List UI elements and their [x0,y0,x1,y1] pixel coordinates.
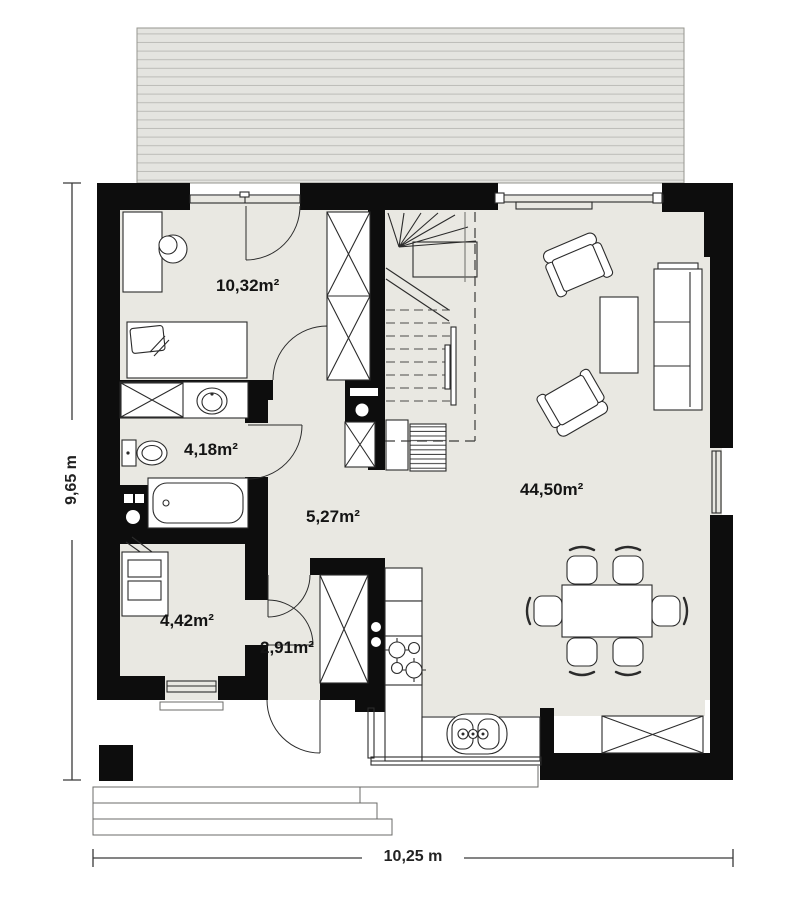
storage-box [345,422,375,467]
entrance-door [267,700,320,753]
toilet [122,440,167,466]
coffee-table [600,297,638,373]
radiator [410,424,446,471]
roof-overhang [137,28,684,183]
bedroom-wardrobe [327,212,370,380]
bathtub [120,478,248,529]
room-area-label-entry-hall: 2,91m² [260,638,314,658]
dimension-label-width: 10,25 m [363,847,463,867]
room-area-label-hall: 5,27m² [306,507,360,527]
room-area-label-bedroom: 10,32m² [216,276,279,296]
room-area-label-bathroom: 4,18m² [184,440,238,460]
single-bed [127,322,247,378]
porch-pillar [99,745,133,781]
corner-glazing [602,716,703,753]
floor-plan-canvas [0,0,794,900]
desk-chair [159,235,187,263]
desk [123,212,162,292]
washer-sink-counter [120,382,248,418]
room-area-label-living-room: 44,50m² [520,480,583,500]
window-sill [160,702,223,710]
sofa [654,263,702,410]
kitchen-sink [447,714,507,754]
washbasin [197,388,227,414]
floor-plan: 10,32m² 4,18m² 5,27m² 4,42m² 2,91m² 44,5… [0,0,794,900]
stove [385,636,426,685]
room-area-label-utility-room: 4,42m² [160,611,214,631]
handrail [451,327,456,405]
fridge [385,568,422,601]
dimension-label-height: 9,65 m [62,420,82,540]
hall-cabinet [386,420,408,470]
handrail [445,345,450,389]
dining-table [562,585,652,637]
